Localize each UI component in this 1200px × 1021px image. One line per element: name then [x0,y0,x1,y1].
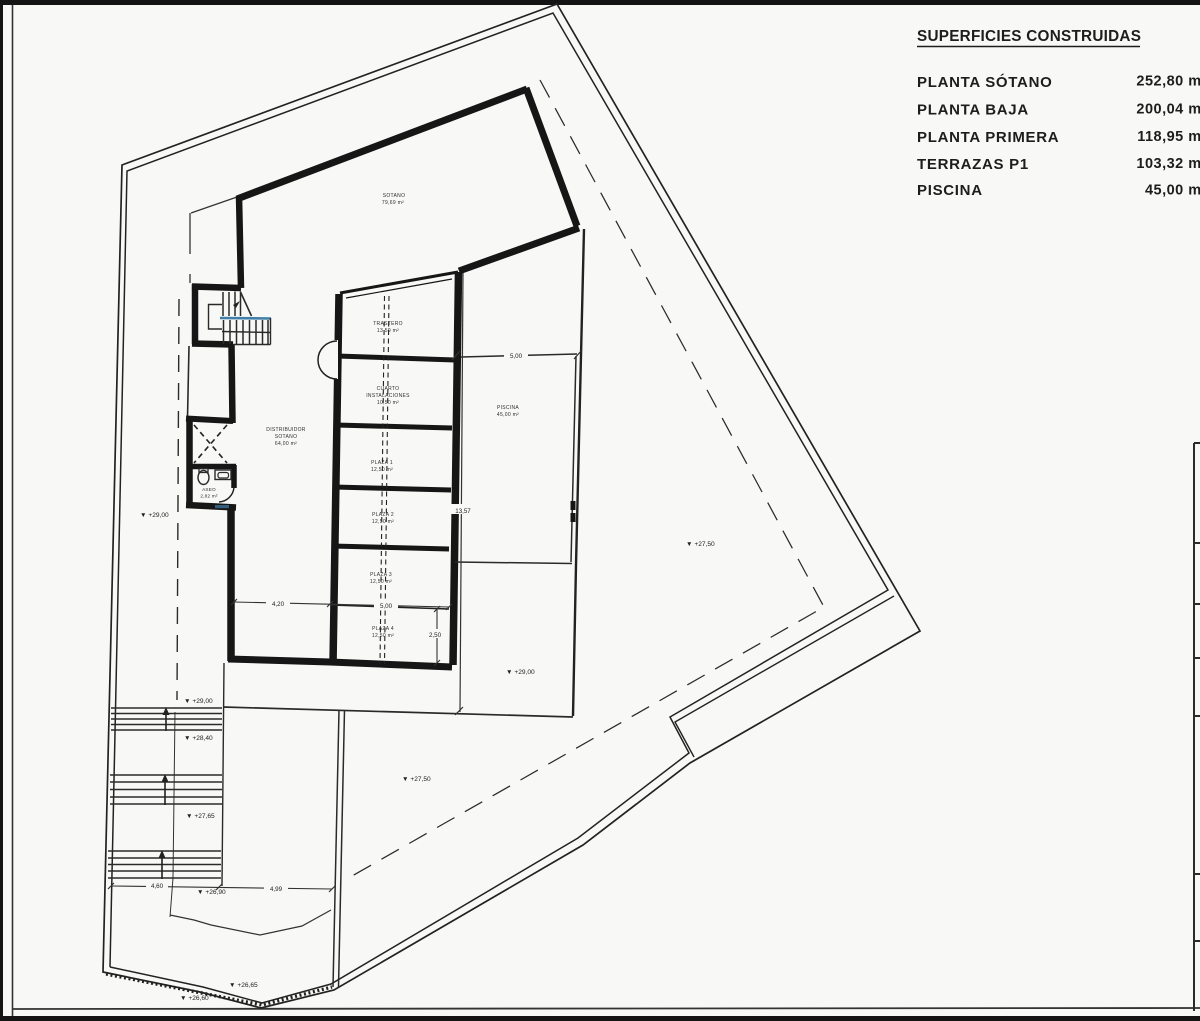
svg-text:SUPERFICIES CONSTRUIDAS: SUPERFICIES CONSTRUIDAS [917,28,1141,45]
svg-text:▼ +26,90: ▼ +26,90 [197,889,226,896]
svg-text:DISTRIBUIDOR: DISTRIBUIDOR [266,427,306,433]
svg-text:12,50 m²: 12,50 m² [372,633,394,639]
svg-text:PISCINA: PISCINA [497,405,519,411]
svg-text:2,82 m²: 2,82 m² [200,494,218,499]
svg-text:13,59 m²: 13,59 m² [377,328,399,334]
svg-text:252,80 m²: 252,80 m² [1136,74,1200,90]
svg-text:TRASTERO: TRASTERO [373,321,403,327]
svg-text:PLANTA PRIMERA: PLANTA PRIMERA [917,129,1059,146]
svg-text:PISCINA: PISCINA [917,182,983,199]
svg-text:4,60: 4,60 [151,883,164,890]
svg-text:12,50 m²: 12,50 m² [371,467,393,473]
svg-text:SOTANO: SOTANO [383,193,406,199]
svg-text:45,00 m²: 45,00 m² [1145,183,1200,199]
svg-text:79,69 m²: 79,69 m² [382,200,404,206]
svg-text:PLAZA 2: PLAZA 2 [372,512,394,518]
svg-text:▼ +29,00: ▼ +29,00 [506,669,535,676]
svg-text:▼ +27,50: ▼ +27,50 [402,776,431,783]
svg-text:118,95 m²: 118,95 m² [1137,129,1200,145]
svg-text:13,57: 13,57 [455,508,471,515]
svg-text:SOTANO: SOTANO [275,434,298,440]
svg-text:64,00 m²: 64,00 m² [275,441,297,447]
svg-text:5,00: 5,00 [510,353,523,360]
svg-text:CUARTO: CUARTO [377,386,400,392]
svg-text:12,50 m²: 12,50 m² [370,579,392,585]
svg-text:INSTALACIONES: INSTALACIONES [366,393,410,399]
svg-text:10,50 m²: 10,50 m² [377,400,399,406]
svg-text:4,20: 4,20 [272,601,285,608]
svg-text:PLAZA 4: PLAZA 4 [372,626,394,632]
svg-text:PLANTA BAJA: PLANTA BAJA [917,102,1029,119]
svg-text:4,99: 4,99 [270,886,283,893]
svg-text:▼ +26,65: ▼ +26,65 [229,982,258,989]
svg-text:PLAZA 1: PLAZA 1 [371,460,393,466]
svg-text:5,00: 5,00 [380,603,393,610]
svg-text:200,04 m²: 200,04 m² [1136,102,1200,118]
svg-text:▼ +27,65: ▼ +27,65 [186,813,215,820]
svg-text:103,32 m²: 103,32 m² [1136,156,1200,172]
svg-text:PLAZA 3: PLAZA 3 [370,572,392,578]
svg-text:PLANTA SÓTANO: PLANTA SÓTANO [917,73,1052,91]
svg-text:▼ +27,50: ▼ +27,50 [686,541,715,548]
svg-text:45,00 m²: 45,00 m² [497,412,519,418]
svg-text:TERRAZAS P1: TERRAZAS P1 [917,156,1029,173]
svg-text:▼ +29,00: ▼ +29,00 [140,512,169,519]
svg-text:ASEO: ASEO [202,487,216,492]
svg-text:▼ +26,60: ▼ +26,60 [180,995,209,1002]
svg-text:▼ +28,40: ▼ +28,40 [184,735,213,742]
svg-text:2,50: 2,50 [429,632,442,639]
svg-text:12,50 m²: 12,50 m² [372,519,394,525]
svg-text:▼ +29,00: ▼ +29,00 [184,698,213,705]
